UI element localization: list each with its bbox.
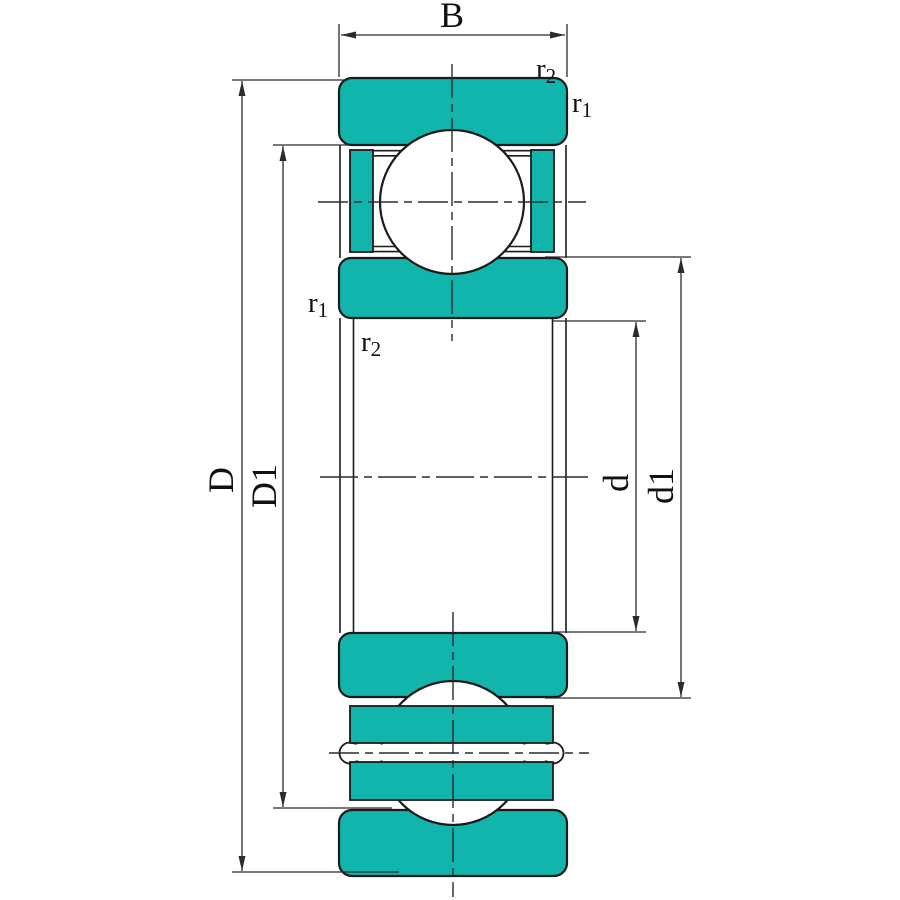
- B-arrow-left: [341, 32, 356, 39]
- bore-edge-lines: [340, 318, 566, 633]
- r1-inner-base: r: [308, 287, 318, 319]
- r1-inner-sub: 1: [318, 298, 329, 322]
- cage-strap-upper: [350, 706, 553, 743]
- B-arrow-right: [550, 32, 565, 39]
- r2-inner-base: r: [361, 326, 371, 358]
- D1-arrow-bottom: [280, 792, 287, 807]
- d1-arrow-bottom: [678, 682, 685, 697]
- label-d1: d1: [641, 468, 681, 504]
- label-r2-inner: r2: [361, 326, 381, 361]
- d-arrow-top: [633, 322, 640, 337]
- r2-outer-sub: 2: [546, 64, 557, 88]
- bearing-drawing-svg: B D D1 d d1 r2 r1 r1: [0, 0, 900, 900]
- d1-arrow-top: [678, 258, 685, 273]
- label-r1-inner: r1: [308, 287, 328, 322]
- cage-bar-left: [350, 150, 373, 252]
- label-d: d: [596, 474, 636, 492]
- cage-bar-right: [531, 150, 554, 252]
- D-arrow-bottom: [239, 856, 246, 871]
- dimension-B: B: [339, 0, 567, 77]
- bearing-drawing: B D D1 d d1 r2 r1 r1: [0, 0, 900, 900]
- r1-outer-base: r: [572, 87, 582, 119]
- upper-cross-section: [339, 78, 567, 318]
- D-arrow-top: [239, 81, 246, 96]
- cage-strap-lower: [350, 762, 553, 800]
- label-r2-outer: r2: [536, 53, 556, 88]
- r2-outer-base: r: [536, 53, 546, 85]
- r2-inner-sub: 2: [371, 337, 382, 361]
- label-D: D: [201, 467, 241, 493]
- label-B: B: [440, 0, 464, 35]
- label-D1: D1: [244, 464, 284, 508]
- d-arrow-bottom: [633, 616, 640, 631]
- D1-arrow-top: [280, 146, 287, 161]
- label-r1-outer: r1: [572, 87, 592, 122]
- r1-outer-sub: 1: [582, 98, 593, 122]
